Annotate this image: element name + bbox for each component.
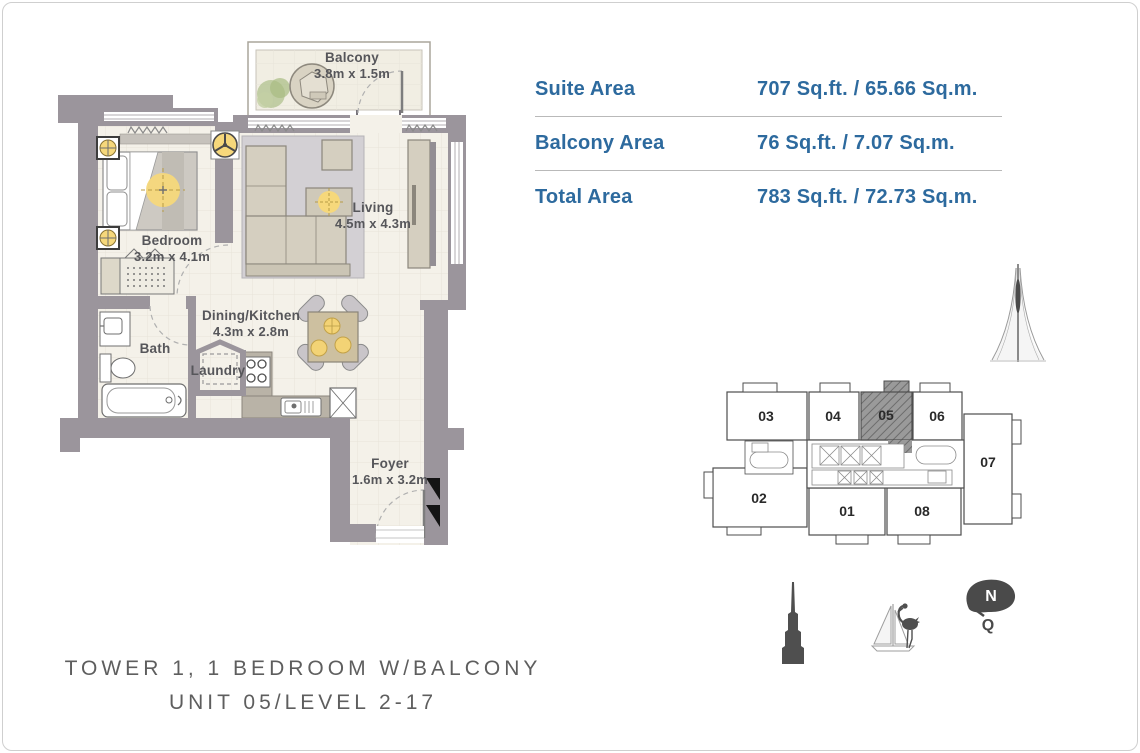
key-plan: 03 04 05 06 07 02 01 08 bbox=[704, 381, 1021, 544]
vanity-sink-icon bbox=[100, 312, 130, 346]
room-label-bedroom: Bedroom 3.2m x 4.1m bbox=[134, 233, 210, 265]
room-name: Living bbox=[353, 200, 394, 215]
room-dims: 4.3m x 2.8m bbox=[202, 324, 300, 340]
room-dims: 1.6m x 3.2m bbox=[352, 472, 428, 488]
compass-tail-label: Q bbox=[982, 617, 994, 634]
stove-icon bbox=[245, 357, 270, 387]
area-row-value: 783 Sq.ft. / 72.73 Sq.m. bbox=[757, 186, 1002, 209]
area-row-value: 707 Sq.ft. / 65.66 Sq.m. bbox=[757, 78, 1002, 101]
floor-plan-page: 03 04 05 06 07 02 01 08 bbox=[0, 0, 1140, 753]
room-name: Balcony bbox=[325, 50, 379, 65]
key-plan-unit-label-01: 01 bbox=[839, 503, 855, 519]
wall-lamp-icon bbox=[97, 137, 119, 159]
area-table-row: Balcony Area 76 Sq.ft. / 7.07 Sq.m. bbox=[535, 117, 1002, 171]
area-table-row: Total Area 783 Sq.ft. / 72.73 Sq.m. bbox=[535, 171, 1002, 224]
key-plan-unit-label-03: 03 bbox=[758, 408, 774, 424]
key-plan-unit-label-06: 06 bbox=[929, 408, 945, 424]
sink-icon bbox=[281, 398, 321, 416]
compass-north-icon: N Q bbox=[966, 580, 1015, 634]
room-label-balcony: Balcony 3.8m x 1.5m bbox=[314, 50, 390, 82]
creek-tower-icon bbox=[990, 264, 1046, 362]
bathtub-icon bbox=[102, 384, 186, 417]
key-plan-unit-label-05: 05 bbox=[878, 407, 894, 423]
area-row-label: Total Area bbox=[535, 186, 757, 209]
wall-lamp-icon bbox=[97, 227, 119, 249]
key-plan-unit-label-08: 08 bbox=[914, 503, 930, 519]
room-name: Dining/Kitchen bbox=[202, 308, 300, 323]
ceiling-fan-icon bbox=[211, 131, 239, 159]
area-row-label: Balcony Area bbox=[535, 132, 757, 155]
key-plan-unit-label-02: 02 bbox=[751, 490, 767, 506]
room-label-foyer: Foyer 1.6m x 3.2m bbox=[352, 456, 428, 488]
sailboat-flamingo-icon bbox=[872, 603, 920, 651]
room-name: Foyer bbox=[371, 456, 409, 471]
unit-title-line2: UNIT 05/LEVEL 2-17 bbox=[169, 691, 437, 715]
area-row-value: 76 Sq.ft. / 7.07 Sq.m. bbox=[757, 132, 1002, 155]
key-plan-unit-label-07: 07 bbox=[980, 454, 996, 470]
room-label-dining-kitchen: Dining/Kitchen 4.3m x 2.8m bbox=[202, 308, 300, 340]
room-dims: 3.8m x 1.5m bbox=[314, 66, 390, 82]
room-label-bath: Bath bbox=[140, 341, 171, 357]
key-plan-unit-label-04: 04 bbox=[825, 408, 841, 424]
tv-console-icon bbox=[408, 140, 436, 268]
area-table-row: Suite Area 707 Sq.ft. / 65.66 Sq.m. bbox=[535, 63, 1002, 117]
burj-khalifa-icon bbox=[782, 582, 804, 664]
fridge-icon bbox=[330, 388, 356, 418]
area-table: Suite Area 707 Sq.ft. / 65.66 Sq.m. Balc… bbox=[535, 63, 1002, 224]
room-dims: 4.5m x 4.3m bbox=[335, 216, 411, 232]
room-name: Bedroom bbox=[142, 233, 203, 248]
room-label-laundry: Laundry bbox=[191, 363, 246, 379]
room-label-living: Living 4.5m x 4.3m bbox=[335, 200, 411, 232]
room-name: Bath bbox=[140, 341, 171, 356]
unit-title-line1: TOWER 1, 1 BEDROOM W/BALCONY bbox=[65, 657, 542, 681]
room-name: Laundry bbox=[191, 363, 246, 378]
compass-north-label: N bbox=[985, 588, 997, 605]
side-table-icon bbox=[322, 140, 352, 170]
room-dims: 3.2m x 4.1m bbox=[134, 249, 210, 265]
area-row-label: Suite Area bbox=[535, 78, 757, 101]
